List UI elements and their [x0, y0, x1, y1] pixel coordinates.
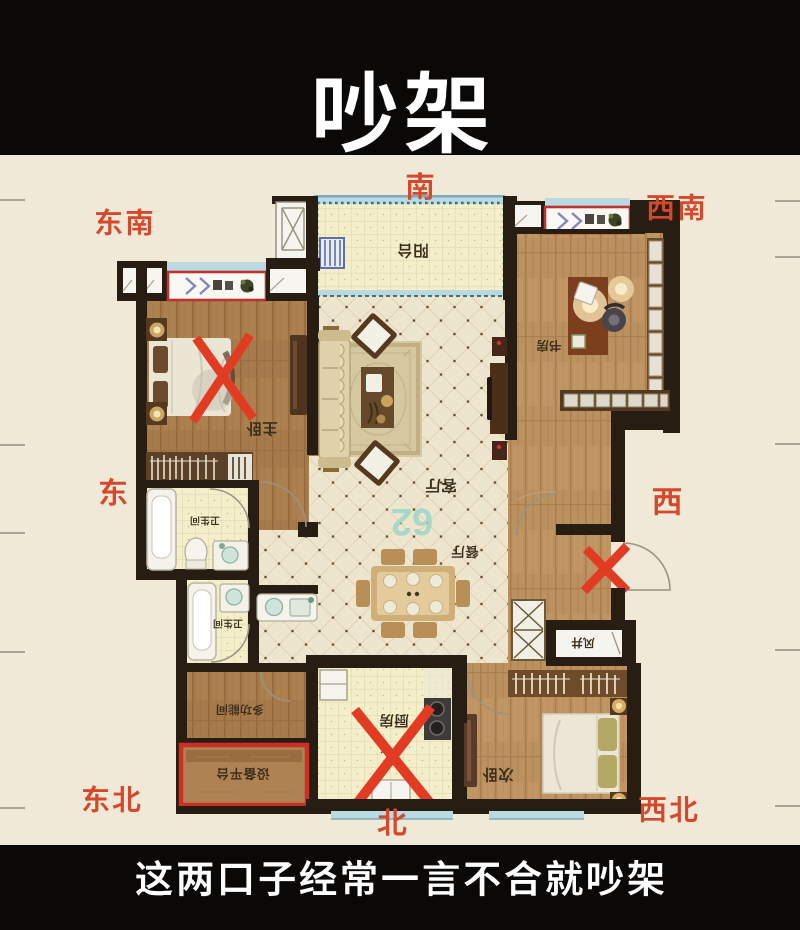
svg-text:62: 62	[391, 500, 433, 542]
